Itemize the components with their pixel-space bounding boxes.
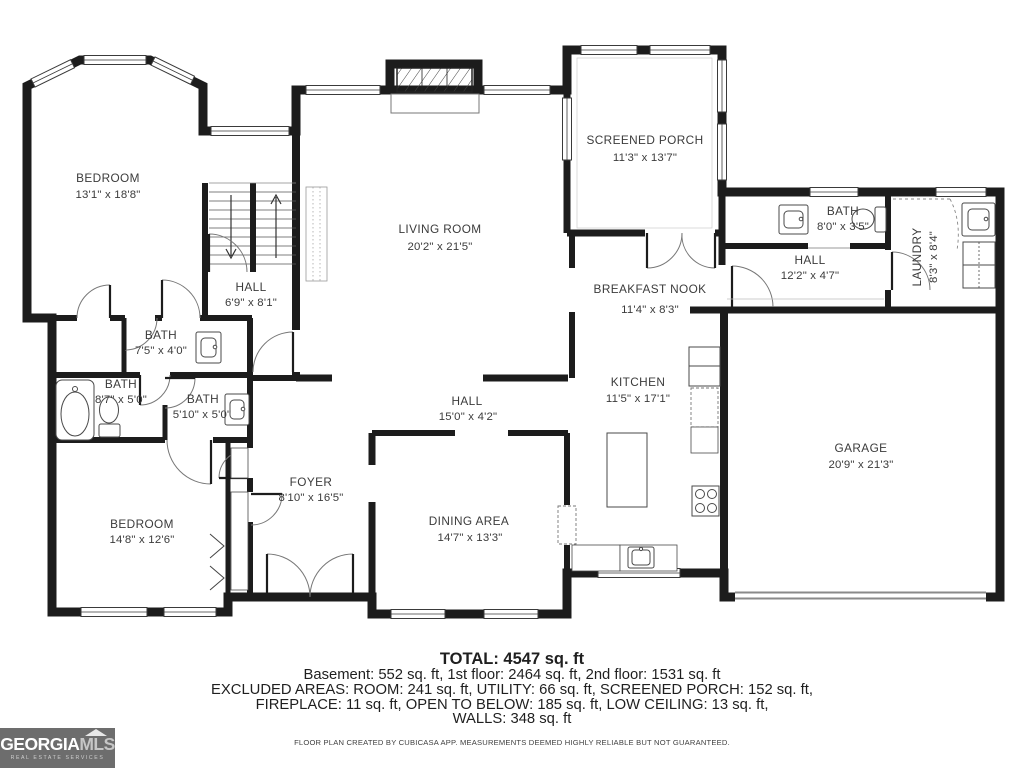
room-dims-bedroom2: 14'8" x 12'6": [109, 534, 174, 546]
room-dims-dining: 14'7" x 13'3": [437, 532, 502, 544]
logo-brand: GEORGIAMLS: [0, 736, 115, 754]
logo-brand-secondary: MLS: [79, 734, 114, 754]
area-summary: TOTAL: 4547 sq. ft Basement: 552 sq. ft,…: [0, 651, 1024, 747]
room-dims-kitchen: 11'5" x 17'1": [606, 393, 670, 405]
room-dims-laundry: 8'3" x 8'4": [928, 231, 940, 283]
excluded-areas-text-2: FIREPLACE: 11 sq. ft, OPEN TO BELOW: 185…: [0, 698, 1024, 713]
entry-door-left-arc: [267, 554, 310, 597]
bedroom1-door-arc: [77, 285, 110, 318]
refrigerator-icon: [689, 347, 720, 386]
room-label-garage: GARAGE: [835, 441, 888, 455]
washer-dryer-icon: [963, 242, 995, 288]
stove-icon: [692, 486, 719, 516]
counter: [572, 545, 620, 571]
closet-shelf: [231, 448, 248, 478]
hearth: [391, 94, 479, 113]
room-dims-foyer: 8'10" x 16'5": [278, 492, 343, 504]
room-dims-breakfast-nook: 11'4" x 8'3": [621, 304, 679, 316]
room-label-living-room: LIVING ROOM: [398, 222, 481, 236]
room-label-laundry: LAUNDRY: [910, 228, 924, 287]
room-label-bedroom1: BEDROOM: [76, 171, 140, 185]
total-area-text: TOTAL: 4547 sq. ft: [0, 651, 1024, 668]
bay-window-left: [31, 60, 74, 87]
logo-tagline: REAL ESTATE SERVICES: [11, 755, 105, 761]
room-label-bath-tub: BATH: [105, 377, 137, 391]
logo-brand-primary: GEORGIA: [0, 734, 79, 754]
roof-icon: [85, 729, 107, 736]
kitchen-island: [607, 433, 647, 507]
disclaimer-text: FLOOR PLAN CREATED BY CUBICASA APP. MEAS…: [0, 738, 1024, 747]
counter: [691, 427, 718, 453]
room-label-hall-stairs: HALL: [235, 280, 266, 294]
laundry-sink-icon: [962, 203, 995, 236]
bifold-closet-doors: [210, 534, 224, 590]
interior-walls: [52, 131, 1000, 597]
porch-french-door-right-arc: [682, 233, 715, 268]
room-label-bath-mid: BATH: [187, 392, 219, 406]
bedroom2-door-arc: [167, 440, 211, 484]
bathtub-icon: [56, 380, 94, 440]
room-dims-hall-stairs: 6'9" x 8'1": [225, 297, 277, 309]
closet-shelf: [231, 492, 248, 590]
garage-door: [735, 590, 986, 602]
room-label-hall-center: HALL: [451, 394, 482, 408]
kitchen-sink-icon: [628, 547, 654, 568]
stairs-up-arrow: [271, 195, 281, 258]
room-dims-hall-right: 12'2" x 4'7": [781, 270, 840, 282]
chase-outline: [306, 187, 327, 281]
sink-icon: [196, 332, 221, 363]
living-room-door-arc: [253, 332, 293, 372]
floor-plan-page: BEDROOM 13'1" x 18'8" LIVING ROOM 20'2" …: [0, 0, 1024, 768]
room-label-screened-porch: SCREENED PORCH: [586, 133, 703, 147]
room-dims-screened-porch: 11'3" x 13'7": [613, 152, 677, 164]
room-label-dining: DINING AREA: [429, 514, 509, 528]
bay-window-right: [151, 57, 194, 84]
room-dims-bath-top-right: 8'0" x 3'5": [817, 221, 869, 233]
pass-through-counter: [558, 506, 576, 544]
room-dims-bath-mid: 5'10" x 5'0": [173, 409, 232, 421]
counter-dashed: [691, 388, 718, 427]
room-dims-garage: 20'9" x 21'3": [828, 459, 893, 471]
porch-french-door-left-arc: [647, 233, 682, 268]
room-dims-hall-center: 15'0" x 4'2": [439, 411, 498, 423]
room-label-foyer: FOYER: [290, 475, 333, 489]
georgia-mls-logo: GEORGIAMLS REAL ESTATE SERVICES: [0, 728, 115, 768]
sink-icon: [779, 205, 808, 234]
stairs-down-arrow: [226, 195, 236, 258]
room-label-bath-top-right: BATH: [827, 204, 859, 218]
room-label-bedroom2: BEDROOM: [110, 517, 174, 531]
fixtures: [56, 58, 995, 590]
fireplace: [391, 68, 479, 113]
room-label-bath-small: BATH: [145, 328, 177, 342]
room-label-kitchen: KITCHEN: [611, 375, 666, 389]
room-label-hall-right: HALL: [794, 253, 825, 267]
excluded-areas-text: EXCLUDED AREAS: ROOM: 241 sq. ft, UTILIT…: [0, 683, 1024, 698]
walls-area-text: WALLS: 348 sq. ft: [0, 712, 1024, 727]
room-dims-living-room: 20'2" x 21'5": [407, 241, 472, 253]
entry-door-right-arc: [310, 554, 353, 597]
room-dims-bath-small: 7'5" x 4'0": [135, 345, 187, 357]
floor-areas-text: Basement: 552 sq. ft, 1st floor: 2464 sq…: [0, 668, 1024, 683]
laundry-cabinet-dashed: [893, 199, 958, 250]
room-dims-bath-tub: 8'7" x 5'0": [95, 394, 147, 406]
room-label-breakfast-nook: BREAKFAST NOOK: [594, 282, 707, 296]
room-dims-bedroom1: 13'1" x 18'8": [75, 189, 140, 201]
